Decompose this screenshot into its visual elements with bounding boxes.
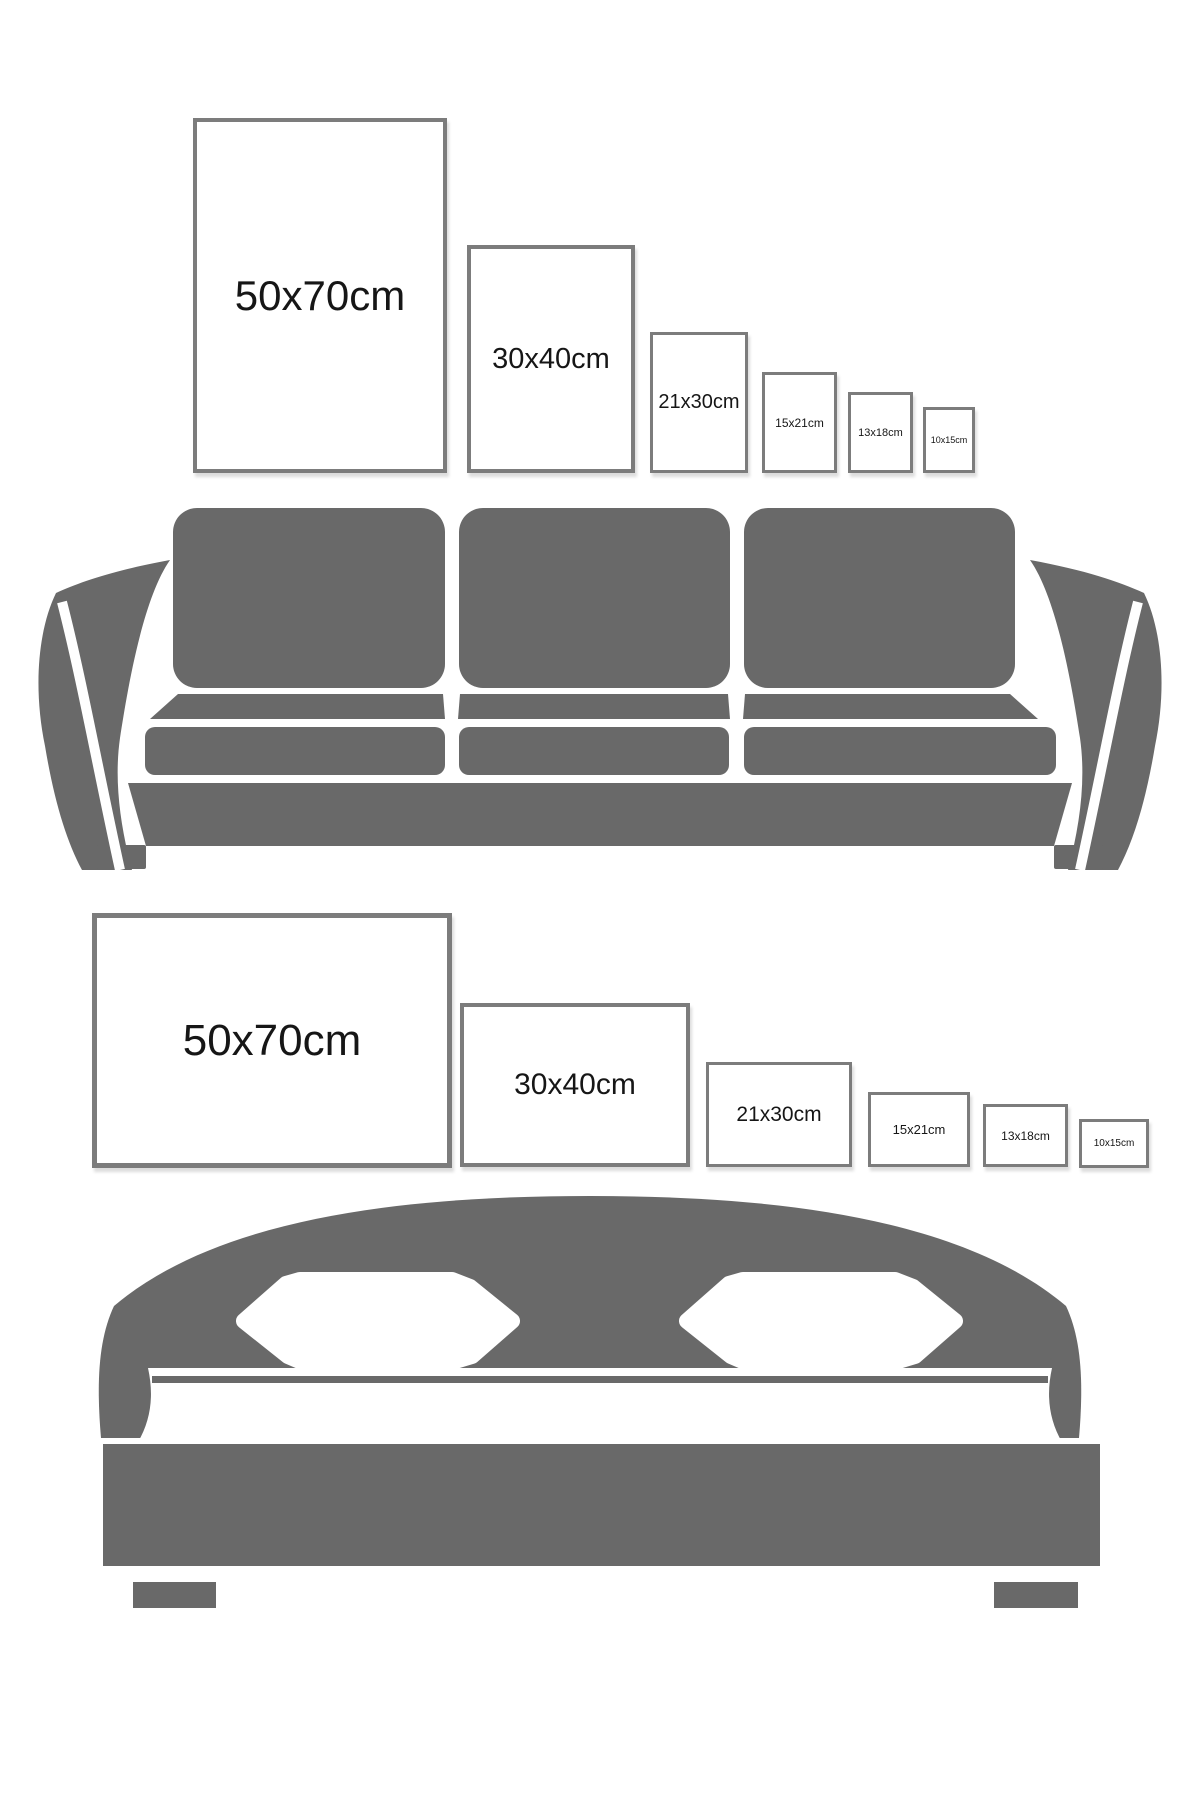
sofa-back-cushion <box>744 508 1015 688</box>
frame-size-label: 21x30cm <box>658 391 739 414</box>
frame-size-label: 50x70cm <box>183 1016 362 1066</box>
sofa-back-cushion <box>459 508 730 688</box>
bed-pillow <box>244 1280 512 1362</box>
frame-size-label: 10x15cm <box>1094 1138 1135 1149</box>
bed-base <box>103 1444 1100 1566</box>
frame-size-label: 15x21cm <box>775 416 824 430</box>
bed-mattress-line <box>152 1376 1048 1383</box>
bed-foot <box>133 1582 216 1608</box>
frame-landscape-10x15: 10x15cm <box>1079 1119 1149 1168</box>
sofa-seat-deck <box>458 694 730 719</box>
bed-foot <box>994 1582 1078 1608</box>
frame-landscape-13x18: 13x18cm <box>983 1104 1068 1167</box>
frame-landscape-30x40: 30x40cm <box>460 1003 690 1167</box>
frame-size-label: 50x70cm <box>235 272 405 320</box>
frame-size-label: 30x40cm <box>492 343 610 376</box>
bed-pillow <box>687 1280 955 1362</box>
sofa-back-cushion <box>173 508 445 688</box>
frame-size-label: 15x21cm <box>893 1122 946 1137</box>
frame-portrait-50x70: 50x70cm <box>193 118 447 473</box>
frame-landscape-21x30: 21x30cm <box>706 1062 852 1167</box>
sofa-base <box>128 783 1072 846</box>
sofa-seat-deck <box>150 694 445 719</box>
sofa-seat-cushion <box>744 727 1056 775</box>
sofa-seat-cushion <box>145 727 445 775</box>
frame-size-label: 30x40cm <box>514 1068 636 1102</box>
bed-illustration <box>0 1190 1200 1620</box>
sofa-illustration <box>0 430 1200 880</box>
frame-landscape-15x21: 15x21cm <box>868 1092 970 1167</box>
frame-size-label: 21x30cm <box>736 1103 821 1127</box>
frame-size-label: 13x18cm <box>1001 1129 1050 1143</box>
frame-landscape-50x70: 50x70cm <box>92 913 452 1168</box>
sofa-seat-cushion <box>459 727 729 775</box>
sofa-seat-deck <box>743 694 1038 719</box>
